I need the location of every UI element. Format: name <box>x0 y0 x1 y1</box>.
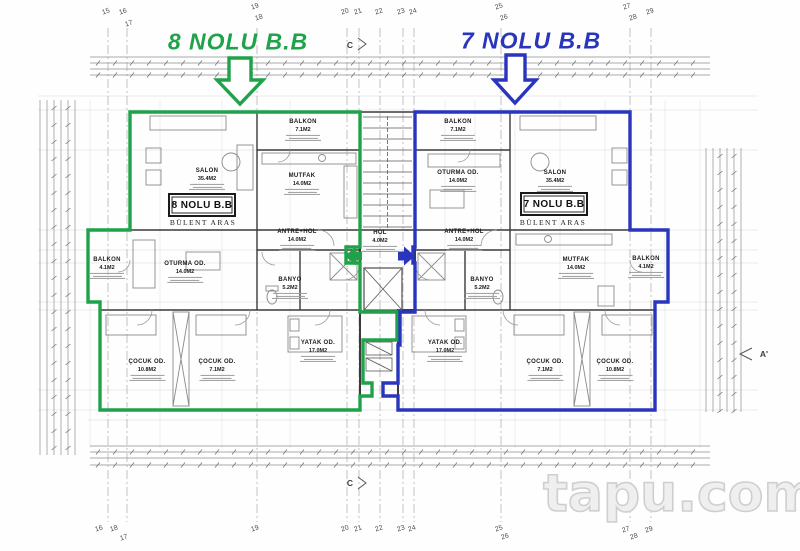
unit-8-arrow-icon <box>217 58 263 104</box>
unit-8-label-box: 8 NOLU B.B <box>168 193 236 217</box>
room-label-salon-unit8: SALON35.4M2 <box>189 168 225 190</box>
room-label-ocuk-od-unit8: ÇOCUK OD.10.8M2 <box>128 359 165 381</box>
section-marker-icons <box>358 38 752 489</box>
room-label-ocuk-od-unit8: ÇOCUK OD.7.1M2 <box>198 359 235 381</box>
room-label-balkon-unit7: BALKON7.1M2 <box>440 119 476 141</box>
unit-7-owner-name: BÜLENT ARAS <box>520 218 586 227</box>
room-label-oturma-od-unit8: OTURMA OD.14.0M2 <box>164 261 205 283</box>
room-label-antre-hol-unit7: ANTRE+HOL14.0M2 <box>444 229 484 251</box>
section-marker-c: C <box>347 40 353 50</box>
unit-8-title: 8 NOLU B.B <box>168 29 308 56</box>
room-label-banyo-unit7: BANYO5.2M2 <box>464 277 500 299</box>
room-label-hol-unitcommon: HOL4.0M2 <box>362 230 398 252</box>
unit-7-title: 7 NOLU B.B <box>461 28 601 55</box>
unit-7-label-box: 7 NOLU B.B <box>520 192 588 216</box>
unit-8-owner-name: BÜLENT ARAS <box>170 218 236 227</box>
elevator-cross <box>364 268 402 310</box>
room-label-mutfak-unit7: MUTFAK14.0M2 <box>558 257 594 279</box>
section-marker-c: C <box>347 478 353 488</box>
room-label-yatak-od-unit8: YATAK OD.17.0M2 <box>300 340 336 362</box>
room-label-ocuk-od-unit7: ÇOCUK OD.7.1M2 <box>526 359 563 381</box>
room-label-antre-hol-unit8: ANTRE+HOL14.0M2 <box>277 229 317 251</box>
room-label-balkon-unit8: BALKON7.1M2 <box>285 119 321 141</box>
floor-plan-page: 8 NOLU B.B 7 NOLU B.B 8 NOLU B.B BÜLENT … <box>0 0 800 551</box>
room-label-balkon-unit8: BALKON4.1M2 <box>89 257 125 279</box>
section-marker-a: A' <box>760 349 768 359</box>
tapu-watermark: tapu.com <box>543 464 800 524</box>
room-label-salon-unit7: SALON35.4M2 <box>537 170 573 192</box>
room-label-banyo-unit8: BANYO5.2M2 <box>272 277 308 299</box>
room-label-oturma-od-unit7: OTURMA OD.14.0M2 <box>437 170 478 192</box>
room-label-ocuk-od-unit7: ÇOCUK OD.10.8M2 <box>596 359 633 381</box>
room-label-yatak-od-unit7: YATAK OD.17.0M2 <box>427 340 463 362</box>
room-label-balkon-unit7: BALKON4.1M2 <box>628 256 664 278</box>
room-label-mutfak-unit8: MUTFAK14.0M2 <box>284 173 320 195</box>
